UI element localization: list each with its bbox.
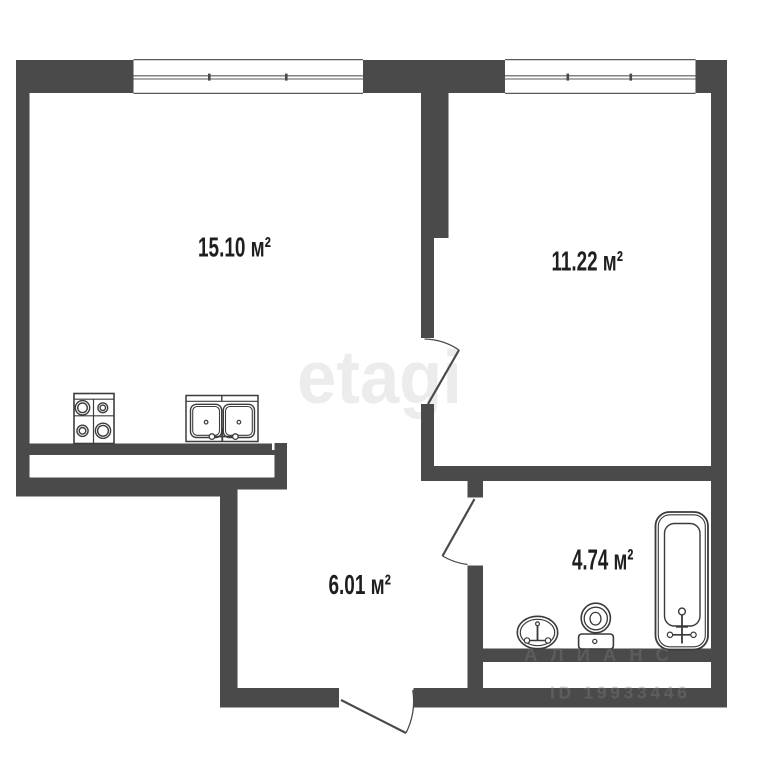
svg-text:11.22 м²: 11.22 м² bbox=[552, 246, 624, 277]
svg-text:4.74 м²: 4.74 м² bbox=[572, 545, 634, 577]
svg-text:6.01 м²: 6.01 м² bbox=[329, 569, 392, 600]
svg-text:ID 19933446: ID 19933446 bbox=[550, 683, 687, 703]
svg-text:15.10 м²: 15.10 м² bbox=[198, 232, 271, 263]
